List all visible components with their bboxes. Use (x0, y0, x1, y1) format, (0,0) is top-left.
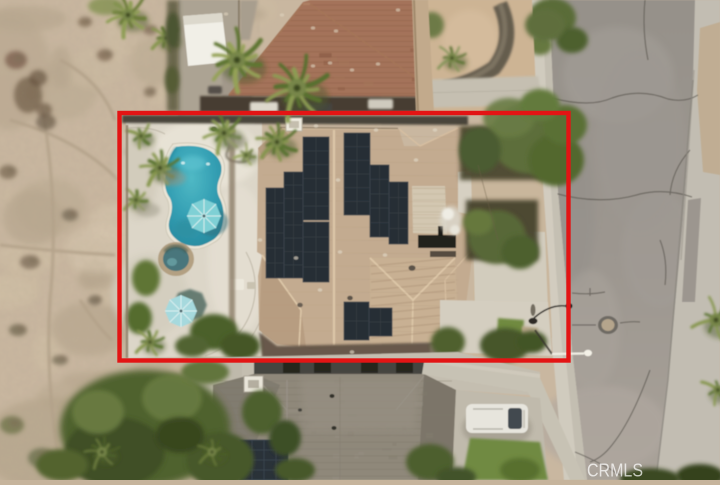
svg-text:CRMLS: CRMLS (587, 460, 643, 481)
